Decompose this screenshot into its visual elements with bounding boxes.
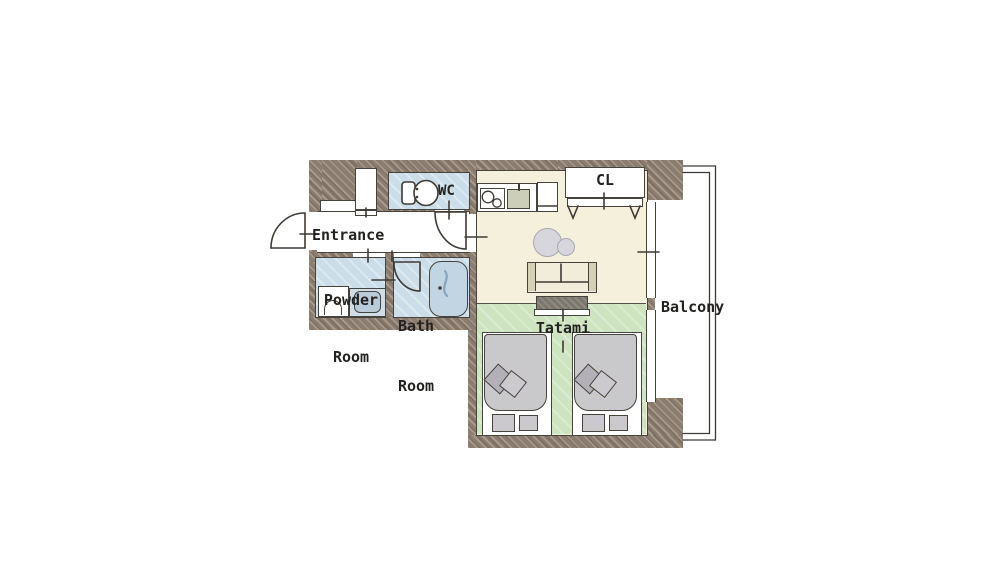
tatami-label: Tatami bbox=[531, 320, 595, 337]
wall-bottom bbox=[468, 435, 683, 448]
bath-room-label-line2: Room bbox=[391, 376, 441, 396]
wc-label: WC bbox=[438, 183, 455, 200]
refrigerator-icon bbox=[537, 182, 558, 212]
powder-room-label-line2: Room bbox=[318, 348, 384, 367]
bath-room-label: Bath Room bbox=[391, 276, 441, 436]
shoe-cabinet-front bbox=[355, 210, 377, 216]
closet-label: CL bbox=[565, 172, 645, 189]
bed-2-foot-left bbox=[582, 414, 605, 432]
sofa-icon bbox=[527, 262, 597, 293]
wall-cabinet-right bbox=[377, 160, 388, 215]
kitchen-sink-icon bbox=[507, 189, 530, 209]
balcony-label: Balcony bbox=[661, 299, 724, 316]
bed-1-foot-left bbox=[492, 414, 515, 432]
sofa-armrest-left bbox=[528, 263, 536, 291]
stove-icon bbox=[480, 188, 505, 209]
wall-corner-top-right bbox=[647, 160, 683, 200]
tv-shelf bbox=[534, 309, 590, 316]
entrance-door-icon bbox=[271, 213, 305, 248]
closet-front-strip bbox=[567, 198, 643, 207]
sofa-armrest-right bbox=[588, 263, 596, 291]
window-lower bbox=[646, 310, 656, 402]
powder-room-label: Powder Room bbox=[318, 253, 384, 405]
powder-room-label-line1: Powder bbox=[318, 291, 384, 310]
entrance-label: Entrance bbox=[312, 227, 384, 244]
bed-1-foot-right bbox=[519, 415, 538, 431]
window-upper bbox=[646, 202, 656, 298]
floor-plan: Entrance Powder Room Bath Room WC CL Tat… bbox=[0, 0, 1000, 563]
bath-room-label-line1: Bath bbox=[391, 316, 441, 336]
floor-cushion-small-icon bbox=[557, 238, 575, 256]
shoe-cabinet-icon bbox=[355, 168, 377, 210]
bed-2-foot-right bbox=[609, 415, 628, 431]
wc-room bbox=[388, 172, 470, 210]
